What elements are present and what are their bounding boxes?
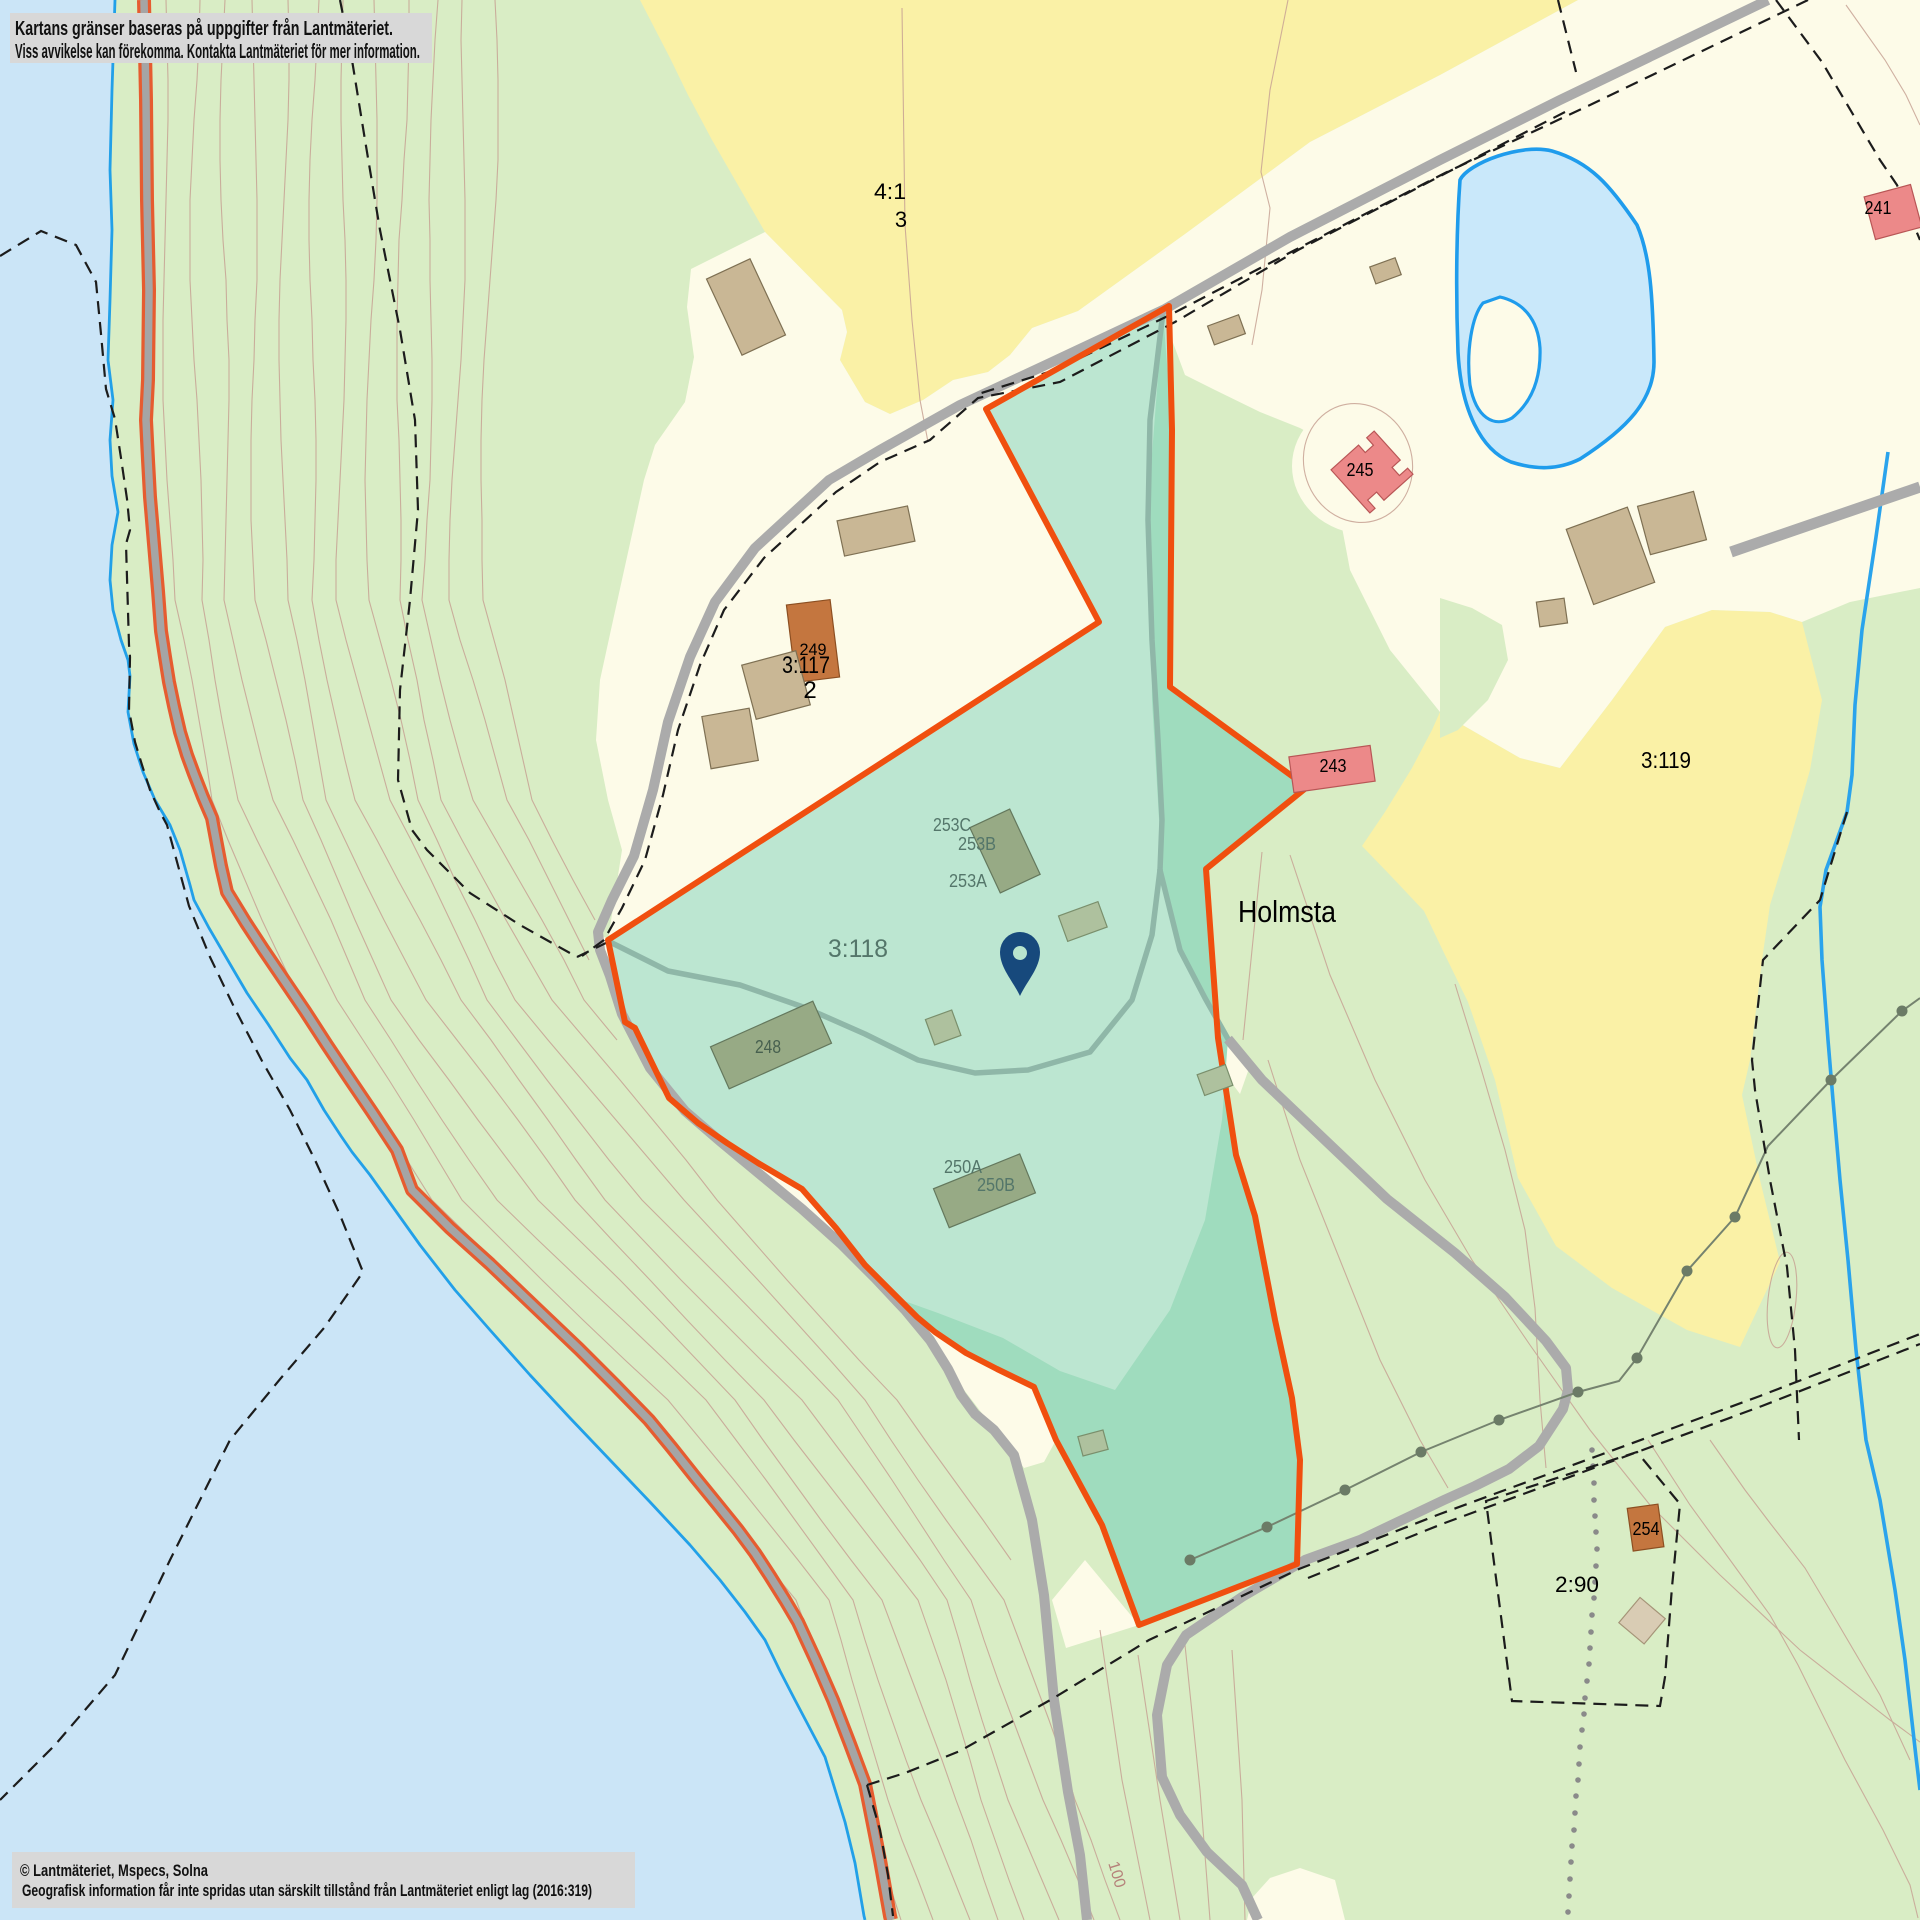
svg-text:4:1: 4:1 <box>874 179 906 204</box>
svg-text:253A: 253A <box>949 871 987 891</box>
svg-text:© Lantmäteriet, Mspecs, Solna: © Lantmäteriet, Mspecs, Solna <box>20 1861 208 1880</box>
svg-text:253B: 253B <box>958 834 996 854</box>
svg-text:2:90: 2:90 <box>1555 1572 1599 1597</box>
svg-text:3: 3 <box>895 207 907 232</box>
svg-text:250A: 250A <box>944 1157 982 1177</box>
svg-text:250B: 250B <box>977 1175 1015 1195</box>
svg-text:3:117: 3:117 <box>782 652 830 679</box>
svg-text:254: 254 <box>1633 1519 1660 1539</box>
svg-text:253C: 253C <box>933 815 971 835</box>
svg-text:243: 243 <box>1320 756 1347 776</box>
svg-text:2: 2 <box>803 677 816 704</box>
svg-text:245: 245 <box>1347 460 1374 480</box>
svg-text:Geografisk information får int: Geografisk information får inte spridas … <box>22 1881 592 1900</box>
svg-text:3:118: 3:118 <box>828 935 888 963</box>
svg-text:Holmsta: Holmsta <box>1238 894 1337 929</box>
svg-text:Viss avvikelse kan förekomma.: Viss avvikelse kan förekomma. Kontakta L… <box>15 41 420 63</box>
svg-text:241: 241 <box>1865 198 1892 218</box>
svg-text:3:119: 3:119 <box>1641 747 1691 773</box>
svg-text:248: 248 <box>755 1037 781 1057</box>
svg-text:Kartans gränser baseras på upp: Kartans gränser baseras på uppgifter frå… <box>15 17 393 40</box>
